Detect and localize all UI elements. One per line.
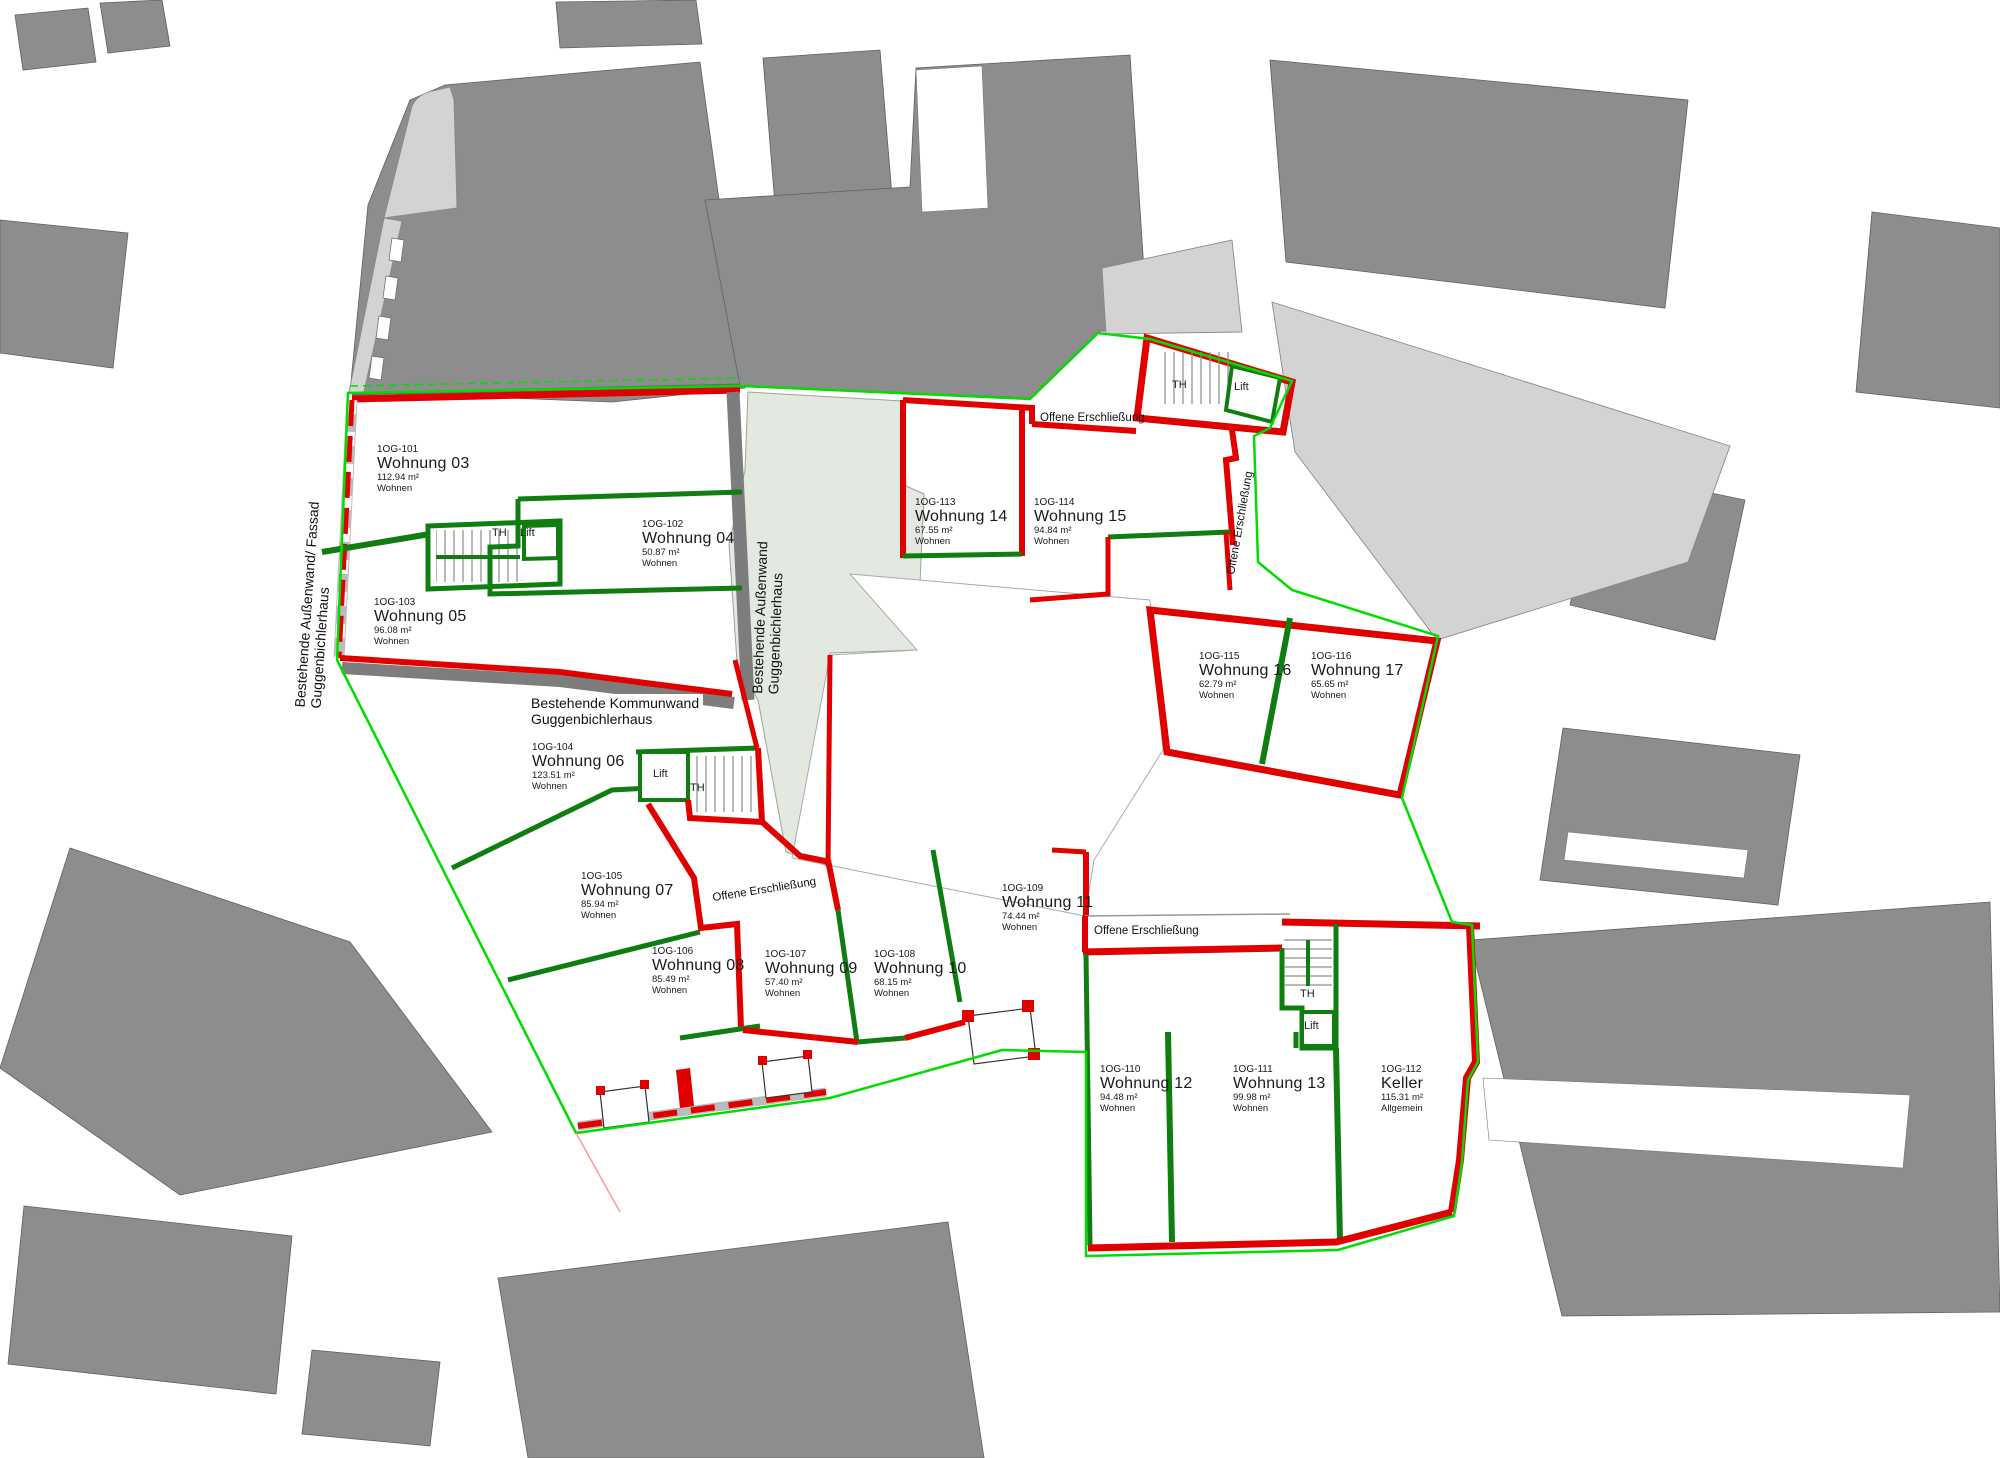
unit-label-wohnung-04: 1OG-102 Wohnung 04 50.87 m² Wohnen bbox=[642, 519, 734, 569]
floor-plan-page: 1OG-101 Wohnung 03 112.94 m² Wohnen 1OG-… bbox=[0, 0, 2000, 1458]
balcony-w11 bbox=[962, 1000, 1040, 1064]
unit-label-wohnung-14: 1OG-113 Wohnung 14 67.55 m² Wohnen bbox=[915, 497, 1007, 547]
reference-line bbox=[576, 1133, 620, 1212]
stairwell-label: TH bbox=[690, 782, 705, 794]
unit-label-wohnung-09: 1OG-107 Wohnung 09 57.40 m² Wohnen bbox=[765, 949, 857, 999]
lift-label: Lift bbox=[1304, 1020, 1319, 1032]
unit-label-wohnung-08: 1OG-106 Wohnung 08 85.49 m² Wohnen bbox=[652, 946, 744, 996]
unit-label-wohnung-12: 1OG-110 Wohnung 12 94.48 m² Wohnen bbox=[1100, 1064, 1192, 1114]
unit-label-keller: 1OG-112 Keller 115.31 m² Allgemein bbox=[1381, 1064, 1423, 1114]
block-w16-w17 bbox=[1150, 610, 1437, 795]
annotation-existing-common-wall: Bestehende Kommunwand Guggenbichlerhaus bbox=[527, 694, 703, 728]
unit-label-wohnung-03: 1OG-101 Wohnung 03 112.94 m² Wohnen bbox=[377, 444, 469, 494]
unit-label-wohnung-11: 1OG-109 Wohnung 11 74.44 m² Wohnen bbox=[1002, 883, 1093, 933]
unit-label-wohnung-13: 1OG-111 Wohnung 13 99.98 m² Wohnen bbox=[1233, 1064, 1325, 1114]
lift-label: Lift bbox=[520, 527, 535, 539]
open-circulation-label: Offene Erschließung bbox=[1040, 412, 1145, 424]
stairwell-label: TH bbox=[1172, 379, 1187, 391]
unit-label-wohnung-06: 1OG-104 Wohnung 06 123.51 m² Wohnen bbox=[532, 742, 624, 792]
open-circulation-label: Offene Erschließung bbox=[1094, 925, 1199, 937]
floor-plan-drawing bbox=[0, 0, 2000, 1458]
lift-label: Lift bbox=[1234, 381, 1249, 393]
unit-label-wohnung-10: 1OG-108 Wohnung 10 68.15 m² Wohnen bbox=[874, 949, 966, 999]
unit-label-wohnung-05: 1OG-103 Wohnung 05 96.08 m² Wohnen bbox=[374, 597, 466, 647]
unit-label-wohnung-07: 1OG-105 Wohnung 07 85.94 m² Wohnen bbox=[581, 871, 673, 921]
lift-label: Lift bbox=[653, 768, 668, 780]
annotation-existing-outer-wall: Bestehende Außenwand Guggenbichlerhaus bbox=[749, 534, 787, 695]
unit-label-wohnung-16: 1OG-115 Wohnung 16 62.79 m² Wohnen bbox=[1199, 651, 1291, 701]
stairwell-label: TH bbox=[1300, 988, 1315, 1000]
stairwell-label: TH bbox=[492, 527, 507, 539]
unit-label-wohnung-15: 1OG-114 Wohnung 15 94.84 m² Wohnen bbox=[1034, 497, 1126, 547]
unit-label-wohnung-17: 1OG-116 Wohnung 17 65.65 m² Wohnen bbox=[1311, 651, 1403, 701]
